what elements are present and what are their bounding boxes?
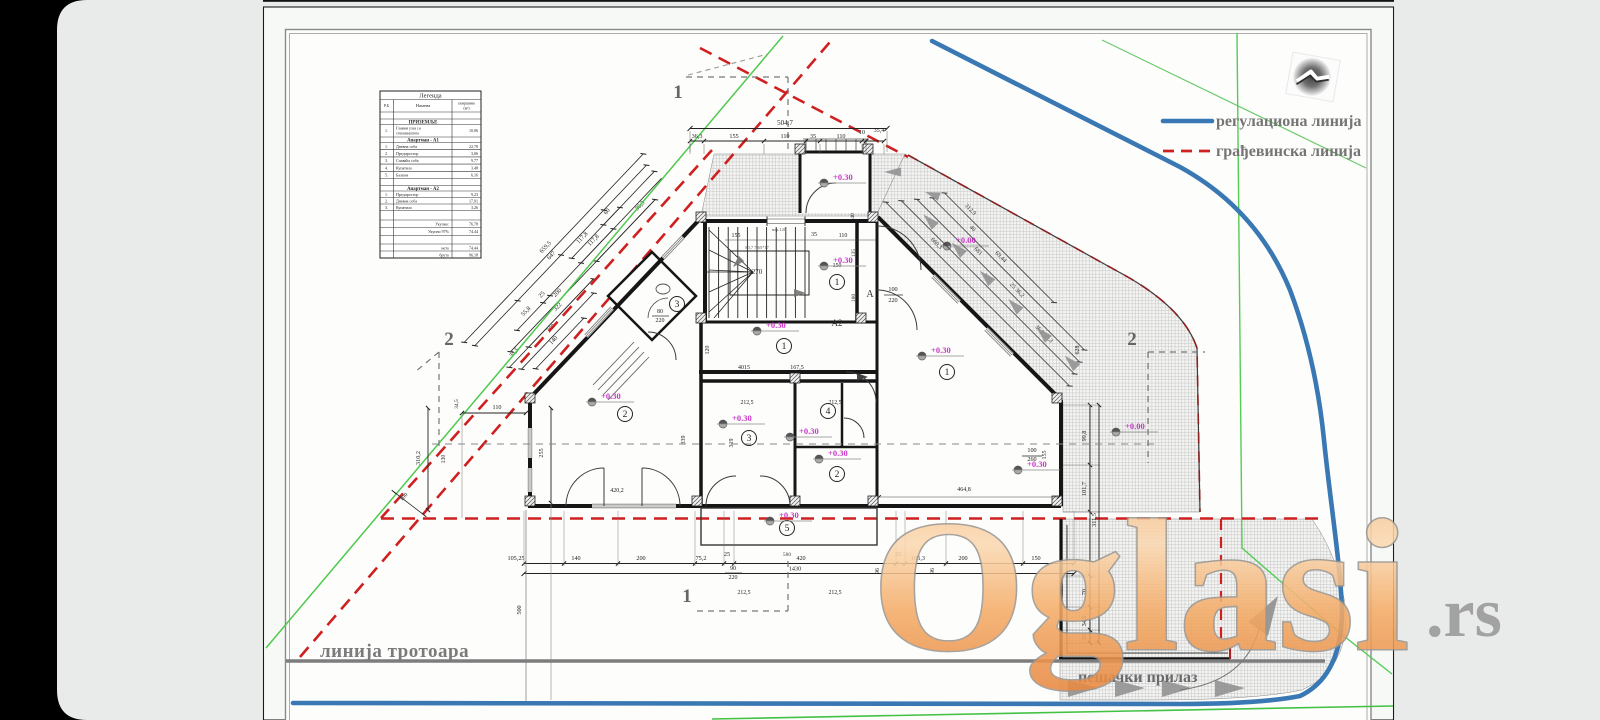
svg-text:212,5: 212,5 bbox=[828, 400, 841, 406]
svg-text:Намена: Намена bbox=[416, 103, 431, 108]
svg-text:+0.30: +0.30 bbox=[931, 345, 951, 355]
svg-text:3: 3 bbox=[675, 300, 680, 310]
svg-text:линија тротоара: линија тротоара bbox=[320, 641, 469, 662]
svg-text:+0.00: +0.00 bbox=[1125, 421, 1145, 431]
svg-text:(м²): (м²) bbox=[463, 107, 470, 111]
svg-text:5.: 5. bbox=[385, 173, 388, 178]
svg-text:25: 25 bbox=[724, 551, 730, 558]
svg-text:регулациона линија: регулациона линија bbox=[1216, 113, 1361, 130]
svg-text:2: 2 bbox=[835, 470, 840, 480]
svg-text:+0.30: +0.30 bbox=[833, 255, 853, 265]
svg-text:34,5: 34,5 bbox=[454, 399, 460, 409]
svg-text:35: 35 bbox=[810, 133, 816, 140]
svg-text:+0.30: +0.30 bbox=[1027, 459, 1047, 469]
svg-text:105,25: 105,25 bbox=[507, 555, 524, 562]
svg-text:површина: површина bbox=[458, 102, 475, 106]
svg-text:Предпростор: Предпростор bbox=[396, 192, 418, 197]
svg-text:500: 500 bbox=[516, 605, 523, 614]
svg-text:Р.Б: Р.Б bbox=[384, 103, 390, 108]
svg-text:36,3: 36,3 bbox=[692, 133, 703, 140]
svg-text:+0.30: +0.30 bbox=[779, 510, 799, 520]
svg-text:110: 110 bbox=[839, 233, 848, 239]
svg-text:2: 2 bbox=[1127, 329, 1137, 350]
svg-text:3.: 3. bbox=[385, 205, 388, 210]
svg-text:1.: 1. bbox=[385, 192, 388, 197]
svg-text:Балкон: Балкон bbox=[396, 173, 409, 178]
svg-text:420,2: 420,2 bbox=[610, 488, 624, 494]
svg-text:1: 1 bbox=[835, 278, 840, 288]
svg-text:310,2: 310,2 bbox=[415, 451, 422, 465]
svg-text:3.: 3. bbox=[385, 158, 388, 163]
svg-text:35,4: 35,4 bbox=[874, 127, 885, 134]
svg-text:Предпростор: Предпростор bbox=[396, 151, 418, 156]
svg-text:220: 220 bbox=[729, 575, 738, 581]
svg-text:255: 255 bbox=[538, 448, 545, 457]
svg-text:Легенда: Легенда bbox=[419, 92, 442, 99]
svg-text:1: 1 bbox=[673, 82, 683, 103]
svg-text:1: 1 bbox=[682, 586, 692, 607]
svg-text:420: 420 bbox=[796, 555, 805, 562]
svg-text:Спаваћа соба: Спаваћа соба bbox=[396, 158, 419, 163]
svg-text:1.: 1. bbox=[385, 144, 388, 149]
svg-text:99,8: 99,8 bbox=[1081, 431, 1088, 442]
svg-text:+0.30: +0.30 bbox=[601, 391, 621, 401]
svg-text:339: 339 bbox=[681, 436, 687, 445]
svg-text:Апартман - А1: Апартман - А1 bbox=[407, 139, 439, 144]
svg-text:Oglasi: Oglasi bbox=[872, 481, 1409, 691]
svg-text:504,7: 504,7 bbox=[777, 119, 793, 127]
svg-text:80: 80 bbox=[657, 309, 663, 315]
svg-text:4.: 4. bbox=[385, 165, 388, 170]
svg-text:4: 4 bbox=[826, 407, 831, 417]
svg-text:212,5: 212,5 bbox=[828, 590, 841, 596]
svg-text:2.: 2. bbox=[385, 199, 388, 204]
svg-text:Дневна соба: Дневна соба bbox=[396, 144, 417, 149]
svg-text:220: 220 bbox=[888, 297, 897, 304]
svg-text:грађевинска линија: грађевинска линија bbox=[1216, 143, 1361, 160]
svg-text:Дневна соба: Дневна соба bbox=[396, 199, 417, 204]
svg-text:100: 100 bbox=[888, 286, 897, 293]
svg-text:110: 110 bbox=[836, 133, 845, 140]
svg-text:+0.30: +0.30 bbox=[799, 426, 819, 436]
svg-text:270: 270 bbox=[752, 269, 763, 276]
svg-text:155: 155 bbox=[729, 133, 738, 140]
svg-text:2: 2 bbox=[623, 410, 628, 420]
svg-text:А: А bbox=[866, 289, 874, 300]
svg-text:10: 10 bbox=[859, 129, 865, 136]
svg-text:Укупно 97%: Укупно 97% bbox=[428, 229, 450, 234]
svg-text:220: 220 bbox=[656, 318, 665, 324]
svg-text:130: 130 bbox=[441, 455, 447, 464]
svg-text:212,5: 212,5 bbox=[737, 590, 750, 596]
svg-text:90: 90 bbox=[730, 566, 736, 572]
svg-text:40: 40 bbox=[850, 213, 856, 219]
svg-text:+0.30: +0.30 bbox=[833, 172, 853, 182]
svg-text:+0.30: +0.30 bbox=[766, 320, 786, 330]
svg-text:100: 100 bbox=[1027, 447, 1036, 454]
svg-text:628: 628 bbox=[1075, 346, 1081, 355]
svg-text:110: 110 bbox=[492, 404, 501, 411]
svg-text:1: 1 bbox=[782, 342, 787, 352]
svg-text:140: 140 bbox=[571, 555, 580, 562]
svg-text:5: 5 bbox=[785, 524, 790, 534]
svg-text:Купатило: Купатило bbox=[396, 205, 412, 210]
svg-text:бруто: бруто bbox=[439, 253, 449, 258]
svg-text:212,5: 212,5 bbox=[740, 400, 753, 406]
svg-text:2: 2 bbox=[444, 329, 454, 350]
svg-text:3: 3 bbox=[747, 434, 752, 444]
svg-text:2.: 2. bbox=[385, 151, 388, 156]
svg-text:.rs: .rs bbox=[1426, 575, 1502, 652]
svg-text:Укупно:: Укупно: bbox=[435, 222, 449, 227]
svg-text:1.: 1. bbox=[385, 128, 388, 133]
svg-text:35: 35 bbox=[811, 232, 817, 238]
svg-text:+0.30: +0.30 bbox=[732, 413, 752, 423]
svg-text:+0.00: +0.00 bbox=[956, 235, 976, 245]
svg-text:200: 200 bbox=[636, 555, 645, 562]
svg-text:Купатило: Купатило bbox=[396, 165, 412, 170]
svg-text:120: 120 bbox=[705, 346, 711, 355]
svg-text:100: 100 bbox=[851, 294, 857, 303]
svg-text:1430: 1430 bbox=[789, 566, 801, 573]
svg-text:+0.30: +0.30 bbox=[828, 448, 848, 458]
svg-text:4015: 4015 bbox=[738, 365, 750, 371]
svg-text:580: 580 bbox=[783, 552, 792, 558]
svg-text:1: 1 bbox=[945, 368, 950, 378]
svg-text:167,5: 167,5 bbox=[790, 365, 804, 371]
svg-text:А2: А2 bbox=[832, 318, 843, 328]
svg-text:нето: нето bbox=[441, 246, 449, 251]
svg-text:155: 155 bbox=[732, 233, 741, 239]
svg-text:нар.120: нар.120 bbox=[772, 227, 787, 232]
svg-text:75,2: 75,2 bbox=[696, 555, 707, 562]
svg-text:319: 319 bbox=[729, 439, 735, 448]
svg-text:степеништем: степеништем bbox=[396, 131, 419, 136]
